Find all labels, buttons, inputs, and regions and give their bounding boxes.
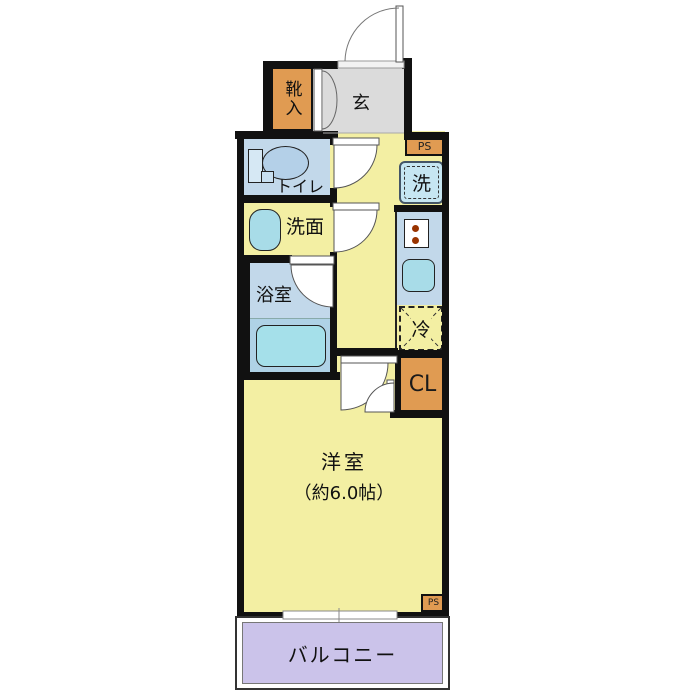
shoe-door-arc-top	[322, 71, 337, 100]
doors-and-window-layer	[0, 0, 700, 700]
entrance-door-leaf	[396, 6, 403, 62]
refrigerator-label: 冷	[399, 306, 443, 351]
entrance-threshold	[338, 61, 404, 68]
bathroom-label: 浴室	[256, 281, 292, 307]
washroom-door-swing	[334, 210, 377, 252]
entrance-door-arc	[345, 8, 399, 61]
refrigerator-label-text: 冷	[411, 315, 430, 342]
main-room-door-leaf	[341, 356, 397, 363]
main-room-label: 洋室 （約6.0帖）	[244, 446, 444, 505]
washroom-label: 洗面	[286, 212, 324, 239]
main-room-size: （約6.0帖）	[244, 479, 444, 505]
toilet-label: トイレ	[276, 173, 324, 197]
toilet-door-leaf	[333, 138, 379, 145]
bathroom-door-leaf	[290, 256, 334, 264]
washroom-door-leaf	[333, 203, 379, 210]
main-room-name: 洋室	[244, 446, 444, 475]
entrance-label: 玄	[352, 89, 370, 115]
balcony-window	[283, 611, 397, 619]
bathroom-door-swing	[291, 265, 333, 307]
shoe-door-leaf	[314, 69, 322, 131]
shoe-door-arc-bottom	[322, 100, 337, 129]
toilet-door-swing	[334, 145, 377, 188]
floor-plan: 洗 靴入 PS CL PS バルコニー	[0, 0, 700, 700]
